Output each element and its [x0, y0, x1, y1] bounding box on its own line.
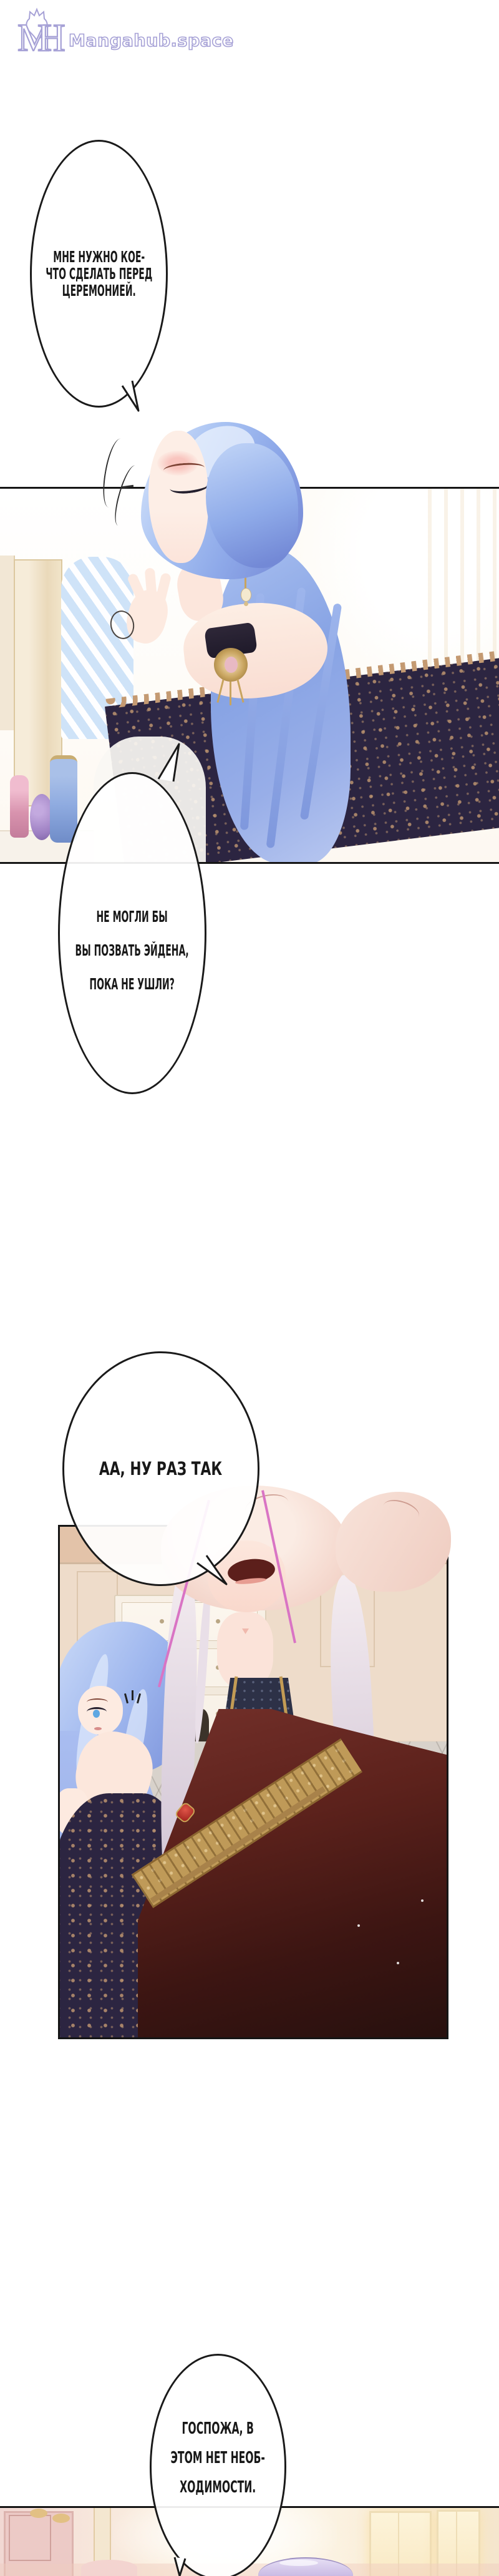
bubble2-line: НЕ МОГЛИ БЫ — [75, 909, 189, 925]
bubble1-line: ЦЕРЕМОНИЕЙ. — [46, 282, 152, 299]
hair-highlight — [181, 418, 261, 486]
panel2-room-art — [58, 1525, 448, 2039]
mangahub-logo: M H — [14, 9, 61, 57]
eyebrow — [163, 462, 205, 477]
forehead-blush — [157, 451, 198, 476]
bubble4-line: ГОСПОЖА, В — [171, 2419, 265, 2439]
speech-bubble-2: НЕ МОГЛИ БЫ ВЫ ПОЗВАТЬ ЭЙДЕНА, ПОКА НЕ У… — [58, 772, 206, 1094]
earring-chain — [245, 567, 246, 589]
earring-bead — [244, 602, 248, 606]
surprise-mark — [132, 1690, 133, 1700]
door-panel — [9, 2515, 51, 2561]
bubble4-line: ХОДИМОСТИ. — [171, 2477, 265, 2498]
speech-bubble-4: ГОСПОЖА, В ЭТОМ НЕТ НЕОБ- ХОДИМОСТИ. — [150, 2354, 286, 2576]
sparkle — [397, 1962, 399, 1964]
pink-sofa-back — [81, 2560, 137, 2576]
finger — [154, 572, 172, 607]
man-neck — [217, 1612, 273, 1688]
wall-frame — [0, 556, 15, 730]
woman2-blue-eye — [93, 1710, 100, 1718]
door-gold-trim — [52, 2514, 70, 2523]
manga-panel-1 — [0, 487, 499, 864]
woman2-mouth — [94, 1727, 102, 1730]
drawer-knob — [160, 1619, 164, 1623]
hair-shine — [279, 2560, 318, 2566]
drawer-knob — [216, 1619, 220, 1623]
manga-panel-2 — [58, 1525, 448, 2039]
bubble2-line: ВЫ ПОЗВАТЬ ЭЙДЕНА, — [75, 943, 189, 959]
sparkle — [421, 1899, 424, 1902]
bubble4-line: ЭТОМ НЕТ НЕОБ- — [171, 2448, 265, 2469]
pendant-gem — [225, 657, 238, 673]
earring-pearl — [241, 588, 251, 602]
logo-letter-h: H — [37, 19, 65, 57]
sparkle — [357, 1924, 360, 1927]
perfume-jar-blue — [50, 755, 77, 843]
site-watermark: M H Mangahub.space — [14, 9, 234, 57]
perfume-bottle-pink — [10, 775, 29, 838]
speech-bubble-3: АА, НУ РАЗ ТАК — [62, 1351, 259, 1586]
site-name: Mangahub.space — [69, 31, 234, 51]
bubble1-line: МНЕ НУЖНО КОЕ- — [46, 248, 152, 265]
hair-curl-line — [380, 1496, 422, 1527]
woman2-eyebrow — [87, 1698, 108, 1706]
door-gold-trim — [30, 2509, 47, 2518]
bubble2-line: ПОКА НЕ УШЛИ? — [75, 976, 189, 992]
manga-reader-page: M H Mangahub.space — [0, 0, 499, 2576]
pendant-chain — [230, 682, 231, 705]
bubble3-line: АА, НУ РАЗ ТАК — [99, 1459, 222, 1479]
panel1-room-art — [0, 487, 499, 864]
bubble1-line: ЧТО СДЕЛАТЬ ПЕРЕД — [46, 265, 152, 282]
speech-bubble-1: МНЕ НУЖНО КОЕ- ЧТО СДЕЛАТЬ ПЕРЕД ЦЕРЕМОН… — [30, 140, 168, 408]
